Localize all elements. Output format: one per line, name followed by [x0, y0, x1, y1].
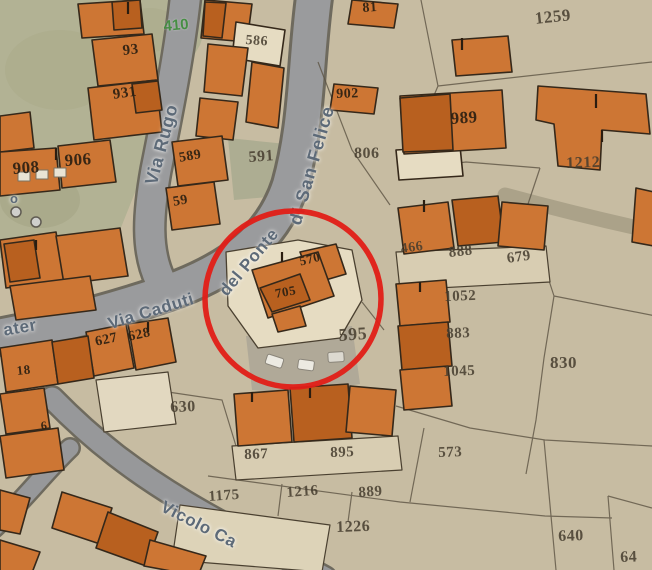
map-graphics: [0, 0, 652, 570]
buildings: [0, 0, 652, 570]
car: [297, 359, 314, 371]
map-canvas[interactable]: 93 931 908 906 586 589 59 591 81 902 806…: [0, 0, 652, 570]
road-marker-icon: [31, 217, 41, 227]
car: [328, 351, 345, 362]
road-marker-icon: [11, 207, 21, 217]
